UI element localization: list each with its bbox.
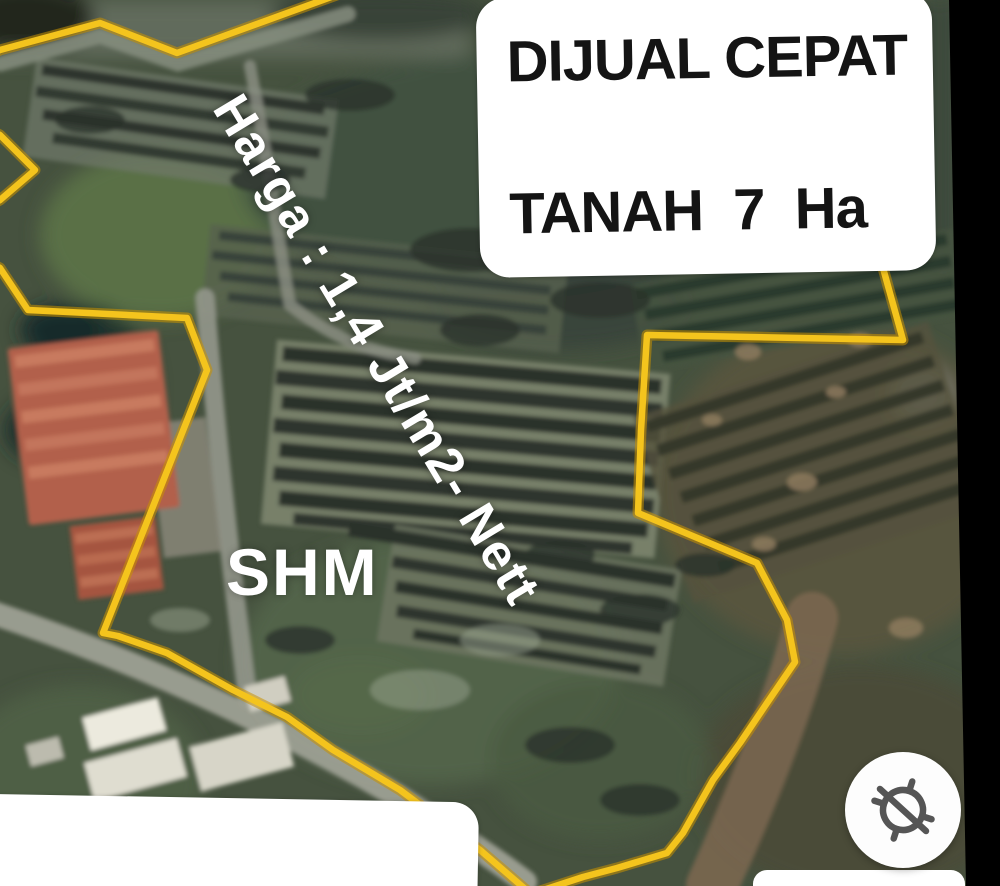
sale-banner-land-area: TANAH 7 Ha xyxy=(509,178,936,243)
sale-banner-title: DIJUAL CEPAT xyxy=(506,26,933,91)
location-off-icon xyxy=(867,774,939,846)
sale-banner: DIJUAL CEPAT TANAH 7 Ha xyxy=(476,0,937,278)
location-banner-text: Legok - Tangerang xyxy=(55,880,518,886)
compass-button[interactable] xyxy=(845,752,961,868)
certificate-overlay-text: SHM xyxy=(226,534,379,610)
bottom-label-fragment xyxy=(753,870,965,886)
location-banner: Legok - Tangerang xyxy=(0,794,479,886)
land-sale-flyer: DIJUAL CEPAT TANAH 7 Ha Harga : 1,4 Jt/m… xyxy=(0,0,1000,886)
